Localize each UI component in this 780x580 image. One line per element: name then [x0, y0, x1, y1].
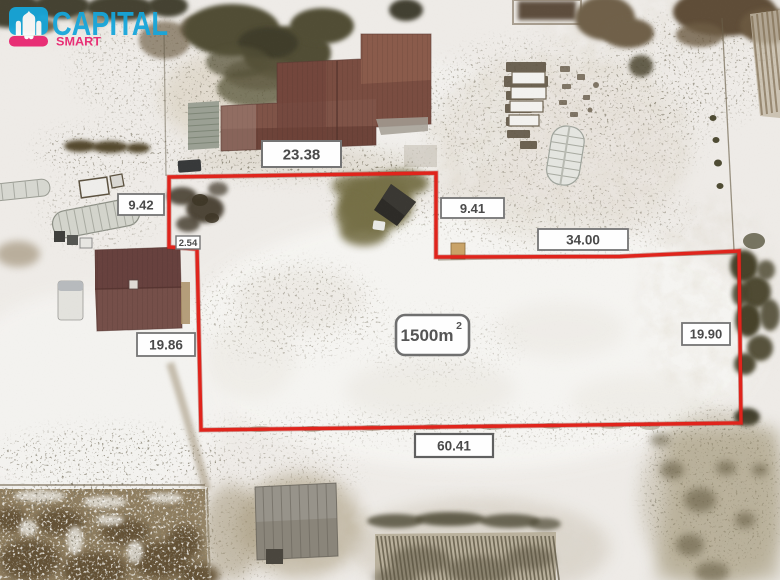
svg-text:23.38: 23.38 — [283, 147, 321, 164]
svg-text:SMART: SMART — [56, 37, 101, 49]
svg-text:2: 2 — [456, 320, 462, 332]
svg-text:9.42: 9.42 — [128, 198, 153, 213]
svg-text:9.41: 9.41 — [460, 201, 485, 216]
svg-text:2.54: 2.54 — [179, 238, 198, 249]
svg-text:34.00: 34.00 — [566, 233, 600, 248]
svg-text:60.41: 60.41 — [437, 439, 471, 454]
svg-text:1500m: 1500m — [401, 326, 454, 345]
svg-text:19.90: 19.90 — [690, 327, 723, 342]
svg-text:19.86: 19.86 — [149, 338, 183, 353]
